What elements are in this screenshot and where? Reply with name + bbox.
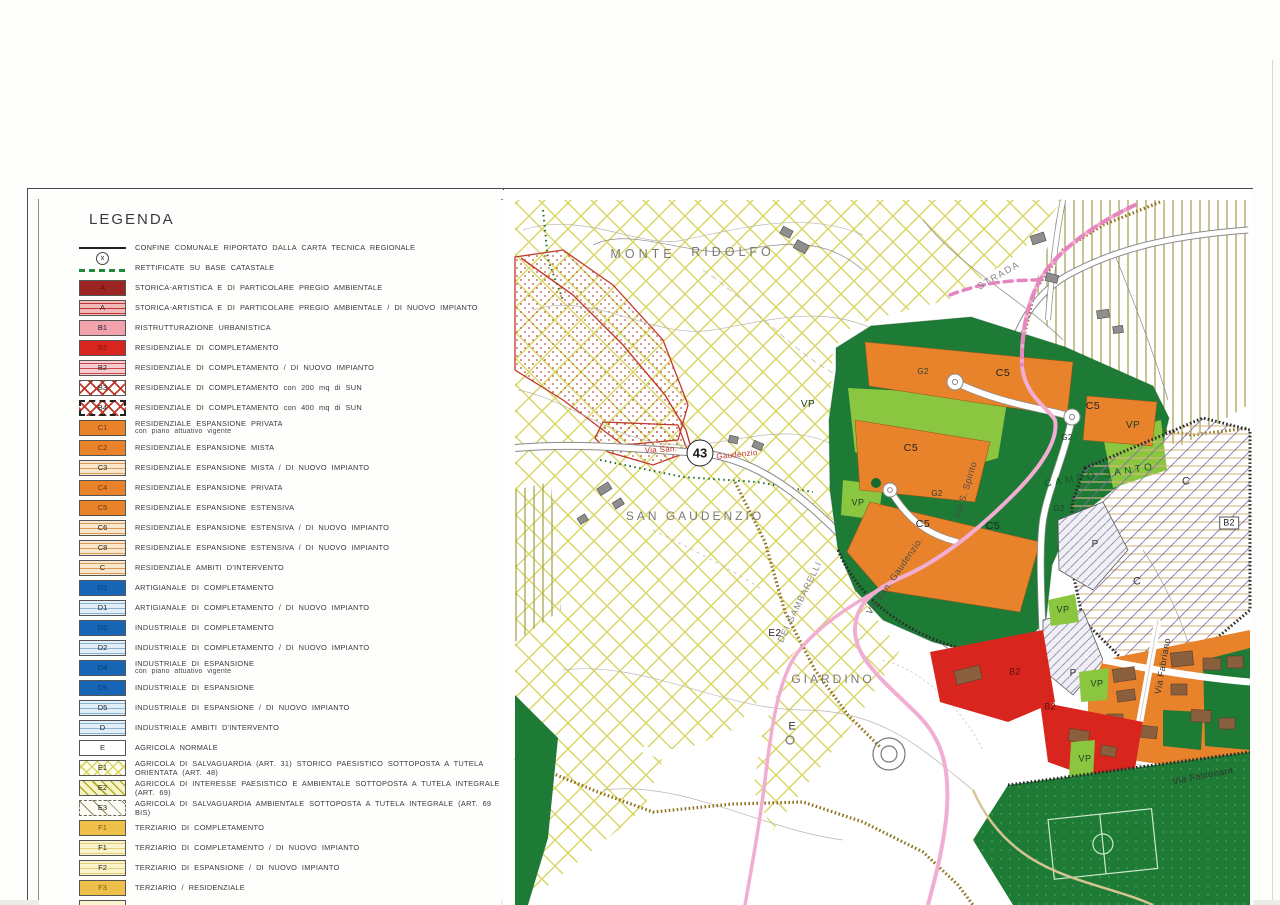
legend-label-text: INDUSTRIALE DI ESPANSIONE [135,659,254,668]
legend-label: RESIDENZIALE ESPANSIONE MISTA [135,443,274,452]
legend-label-text: AGRICOLA DI SALVAGUARDIA AMBIENTALE SOTT… [135,799,491,817]
legend-swatch: F1 [79,820,126,836]
legend-label: RESIDENZIALE ESPANSIONE MISTA / DI NUOVO… [135,463,369,472]
legend-label-text: RESIDENZIALE DI COMPLETAMENTO [135,343,279,352]
legend-label: CONFINE COMUNALE RIPORTATO DALLA CARTA T… [135,243,415,252]
legend-title: LEGENDA [89,211,501,228]
legend-item-e1: E1AGRICOLA DI SALVAGUARDIA (ART. 31) STO… [79,758,501,778]
legend-panel: LEGENDA CONFINE COMUNALE RIPORTATO DALLA… [39,199,501,905]
scanned-zoning-plan-sheet: LEGENDA CONFINE COMUNALE RIPORTATO DALLA… [0,0,1280,905]
legend-swatch: C1 [79,420,126,436]
legend-item-b1: B1RISTRUTTURAZIONE URBANISTICA [79,318,501,338]
legend-item-d4: D4INDUSTRIALE DI ESPANSIONEcon piano att… [79,658,501,678]
legend-label-text: RESIDENZIALE ESPANSIONE ESTENSIVA [135,503,294,512]
legend-swatch: F3 [79,880,126,896]
legend-label: INDUSTRIALE DI COMPLETAMENTO / DI NUOVO … [135,643,369,652]
legend-code: E [100,744,105,752]
legend-item-c3: C3RESIDENZIALE ESPANSIONE MISTA / DI NUO… [79,458,501,478]
legend-label: TERZIARIO / RESIDENZIALE [135,883,245,892]
legend-swatch: x [79,260,126,276]
legend-code: E2 [98,784,107,792]
legend-label: RESIDENZIALE AMBITI D'INTERVENTO [135,563,284,572]
legend-code: C1 [98,424,108,432]
legend-label-text: ARTIGIANALE DI COMPLETAMENTO / DI NUOVO … [135,603,369,612]
legend-label-text: ARTIGIANALE DI COMPLETAMENTO [135,583,274,592]
legend-swatch: F2 [79,860,126,876]
legend-label-subtext: con piano attuativo vigente [135,428,283,437]
legend-label: RISTRUTTURAZIONE URBANISTICA [135,323,271,332]
legend-item-a: ASTORICA-ARTISTICA E DI PARTICOLARE PREG… [79,298,501,318]
legend-swatch: D5 [79,680,126,696]
legend-item-d2: D2INDUSTRIALE DI COMPLETAMENTO [79,618,501,638]
legend-label: ARTIGIANALE DI COMPLETAMENTO [135,583,274,592]
legend-code: B3 [98,384,107,392]
legend-item-partial [79,898,501,905]
legend-label-text: TERZIARIO DI COMPLETAMENTO / DI NUOVO IM… [135,843,359,852]
legend-item-b2: B2RESIDENZIALE DI COMPLETAMENTO / DI NUO… [79,358,501,378]
legend-label: AGRICOLA NORMALE [135,743,218,752]
legend-code: B2 [98,344,107,352]
legend-code: D5 [98,704,108,712]
legend-code: C5 [98,504,108,512]
legend-swatch: D4 [79,660,126,676]
legend-swatch: D2 [79,640,126,656]
legend-label: RESIDENZIALE DI COMPLETAMENTO [135,343,279,352]
legend-label-text: AGRICOLA DI INTERESSE PAESISTICO E AMBIE… [135,779,500,797]
legend-item-c1: C1RESIDENZIALE ESPANSIONE PRIVATAcon pia… [79,418,501,438]
legend-label: INDUSTRIALE DI COMPLETAMENTO [135,623,274,632]
legend-swatch: E [79,740,126,756]
legend-label-text: TERZIARIO DI ESPANSIONE / DI NUOVO IMPIA… [135,863,340,872]
legend-code: D1 [98,604,108,612]
legend-label: INDUSTRIALE DI ESPANSIONEcon piano attua… [135,659,254,677]
legend-label: STORICA-ARTISTICA E DI PARTICOLARE PREGI… [135,303,478,312]
legend-swatch: C3 [79,460,126,476]
legend-code: C [100,564,105,572]
legend-label: RESIDENZIALE ESPANSIONE ESTENSIVA [135,503,294,512]
map-panel: MONTERIDOLFOSAN GAUDENZIOGIARDINOSTRADAD… [503,190,1253,905]
legend-swatch: B1 [79,320,126,336]
legend-item-b4: B4RESIDENZIALE DI COMPLETAMENTO con 400 … [79,398,501,418]
legend-label: INDUSTRIALE DI ESPANSIONE / DI NUOVO IMP… [135,703,349,712]
legend-swatch: C5 [79,500,126,516]
legend-label-text: RESIDENZIALE ESPANSIONE MISTA / DI NUOVO… [135,463,369,472]
legend-item-f1: F1TERZIARIO DI COMPLETAMENTO / DI NUOVO … [79,838,501,858]
legend-label-text: INDUSTRIALE DI COMPLETAMENTO / DI NUOVO … [135,643,369,652]
legend-code: D4 [98,664,108,672]
legend-item-f2: F2TERZIARIO DI ESPANSIONE / DI NUOVO IMP… [79,858,501,878]
legend-item-d1: D1ARTIGIANALE DI COMPLETAMENTO / DI NUOV… [79,598,501,618]
legend-item-a: ASTORICA-ARTISTICA E DI PARTICOLARE PREG… [79,278,501,298]
legend-code: A [100,284,105,292]
legend-code: A [100,304,105,312]
legend-label-text: CONFINE COMUNALE RIPORTATO DALLA CARTA T… [135,243,415,252]
legend-label-subtext: con piano attuativo vigente [135,668,254,677]
legend-swatch: D [79,720,126,736]
legend-code: C3 [98,464,108,472]
legend-label-text: INDUSTRIALE DI COMPLETAMENTO [135,623,274,632]
legend-swatch: E1 [79,760,126,776]
legend-label-text: INDUSTRIALE AMBITI D'INTERVENTO [135,723,279,732]
legend-item-b3: B3RESIDENZIALE DI COMPLETAMENTO con 200 … [79,378,501,398]
circled-x-marker: x [96,252,109,265]
legend-label-text: AGRICOLA DI SALVAGUARDIA (ART. 31) STORI… [135,759,483,777]
legend-item-e2: E2AGRICOLA DI INTERESSE PAESISTICO E AMB… [79,778,501,798]
legend-label: STORICA-ARTISTICA E DI PARTICOLARE PREGI… [135,283,382,292]
legend-item-b2: B2RESIDENZIALE DI COMPLETAMENTO [79,338,501,358]
legend-swatch: D2 [79,620,126,636]
legend-label-text: INDUSTRIALE DI ESPANSIONE / DI NUOVO IMP… [135,703,349,712]
legend-swatch: B2 [79,360,126,376]
legend-label: RESIDENZIALE DI COMPLETAMENTO con 400 mq… [135,403,362,412]
legend-code: D2 [98,624,108,632]
legend-label: RESIDENZIALE ESPANSIONE PRIVATAcon piano… [135,419,283,437]
legend-swatch: E3 [79,800,126,816]
legend-rows: CONFINE COMUNALE RIPORTATO DALLA CARTA T… [79,238,501,905]
legend-item-d: DINDUSTRIALE AMBITI D'INTERVENTO [79,718,501,738]
legend-label-text: RISTRUTTURAZIONE URBANISTICA [135,323,271,332]
legend-code: C4 [98,484,108,492]
legend-code: C6 [98,524,108,532]
legend-label-text: INDUSTRIALE DI ESPANSIONE [135,683,254,692]
legend-label-text: RESIDENZIALE ESPANSIONE MISTA [135,443,274,452]
legend-item-e: EAGRICOLA NORMALE [79,738,501,758]
legend-label: INDUSTRIALE AMBITI D'INTERVENTO [135,723,279,732]
legend-label: RESIDENZIALE ESPANSIONE PRIVATA [135,483,283,492]
frame-top-outer [27,188,1253,189]
legend-swatch: C8 [79,540,126,556]
legend-code: C8 [98,544,108,552]
legend-label: TERZIARIO DI ESPANSIONE / DI NUOVO IMPIA… [135,863,340,872]
legend-label-text: RESIDENZIALE ESPANSIONE PRIVATA [135,483,283,492]
legend-swatch: B4 [79,400,126,416]
legend-swatch: B3 [79,380,126,396]
legend-swatch: A [79,280,126,296]
legend-label-text: RETTIFICATE SU BASE CATASTALE [135,263,274,272]
legend-label-text: RESIDENZIALE DI COMPLETAMENTO con 400 mq… [135,403,362,412]
legend-label-text: RESIDENZIALE ESPANSIONE PRIVATA [135,419,283,428]
legend-code: F2 [98,864,107,872]
legend-code: F3 [98,884,107,892]
legend-swatch: F1 [79,840,126,856]
legend-item-f1: F1TERZIARIO DI COMPLETAMENTO [79,818,501,838]
legend-code: E1 [98,764,107,772]
legend-label-text: TERZIARIO / RESIDENZIALE [135,883,245,892]
legend-label-text: STORICA-ARTISTICA E DI PARTICOLARE PREGI… [135,303,478,312]
legend-item-line: CONFINE COMUNALE RIPORTATO DALLA CARTA T… [79,238,501,258]
legend-label: TERZIARIO DI COMPLETAMENTO / DI NUOVO IM… [135,843,359,852]
legend-swatch [79,900,126,905]
legend-code: F1 [98,824,107,832]
zoning-map [503,190,1253,905]
paper-edge-right [1272,60,1273,905]
legend-label: RESIDENZIALE DI COMPLETAMENTO / DI NUOVO… [135,363,374,372]
legend-label: RESIDENZIALE DI COMPLETAMENTO con 200 mq… [135,383,362,392]
legend-swatch: C4 [79,480,126,496]
legend-item-c2: C2RESIDENZIALE ESPANSIONE MISTA [79,438,501,458]
legend-item-d2: D2INDUSTRIALE DI COMPLETAMENTO / DI NUOV… [79,638,501,658]
legend-swatch: E2 [79,780,126,796]
legend-code: F1 [98,844,107,852]
legend-label: RETTIFICATE SU BASE CATASTALE [135,263,274,272]
legend-code: E3 [98,804,107,812]
legend-label-text: AGRICOLA NORMALE [135,743,218,752]
legend-label-text: TERZIARIO DI COMPLETAMENTO [135,823,264,832]
legend-code: D1 [98,584,108,592]
legend-item-c5: C5RESIDENZIALE ESPANSIONE ESTENSIVA [79,498,501,518]
legend-item-c8: C8RESIDENZIALE ESPANSIONE ESTENSIVA / DI… [79,538,501,558]
legend-item-c6: C6RESIDENZIALE ESPANSIONE ESTENSIVA / DI… [79,518,501,538]
legend-label-text: RESIDENZIALE AMBITI D'INTERVENTO [135,563,284,572]
legend-label: ARTIGIANALE DI COMPLETAMENTO / DI NUOVO … [135,603,369,612]
legend-code: D [100,724,105,732]
legend-code: D2 [98,644,108,652]
legend-item-x: xRETTIFICATE SU BASE CATASTALE [79,258,501,278]
legend-code: D5 [98,684,108,692]
legend-swatch: D1 [79,600,126,616]
legend-code: B2 [98,364,107,372]
legend-item-d5: D5INDUSTRIALE DI ESPANSIONE [79,678,501,698]
legend-label: INDUSTRIALE DI ESPANSIONE [135,683,254,692]
legend-swatch: B2 [79,340,126,356]
legend-swatch: A [79,300,126,316]
legend-item-e3: E3AGRICOLA DI SALVAGUARDIA AMBIENTALE SO… [79,798,501,818]
legend-swatch: C2 [79,440,126,456]
legend-item-c: CRESIDENZIALE AMBITI D'INTERVENTO [79,558,501,578]
legend-label-text: RESIDENZIALE DI COMPLETAMENTO / DI NUOVO… [135,363,374,372]
legend-code: C2 [98,444,108,452]
legend-label: AGRICOLA DI SALVAGUARDIA (ART. 31) STORI… [135,759,501,778]
legend-swatch: C6 [79,520,126,536]
legend-label: TERZIARIO DI COMPLETAMENTO [135,823,264,832]
legend-code: B4 [98,404,107,412]
legend-code: B1 [98,324,107,332]
green-dot-marker [871,478,881,488]
legend-label: AGRICOLA DI INTERESSE PAESISTICO E AMBIE… [135,779,501,798]
legend-label-text: STORICA-ARTISTICA E DI PARTICOLARE PREGI… [135,283,382,292]
legend-label: RESIDENZIALE ESPANSIONE ESTENSIVA / DI N… [135,523,389,532]
legend-label-text: RESIDENZIALE ESPANSIONE ESTENSIVA / DI N… [135,543,389,552]
legend-item-d1: D1ARTIGIANALE DI COMPLETAMENTO [79,578,501,598]
legend-swatch: D5 [79,700,126,716]
legend-item-f3: F3TERZIARIO / RESIDENZIALE [79,878,501,898]
legend-item-c4: C4RESIDENZIALE ESPANSIONE PRIVATA [79,478,501,498]
legend-label-text: RESIDENZIALE DI COMPLETAMENTO con 200 mq… [135,383,362,392]
legend-swatch: C [79,560,126,576]
legend-label: AGRICOLA DI SALVAGUARDIA AMBIENTALE SOTT… [135,799,501,818]
legend-label: RESIDENZIALE ESPANSIONE ESTENSIVA / DI N… [135,543,389,552]
legend-label-text: RESIDENZIALE ESPANSIONE ESTENSIVA / DI N… [135,523,389,532]
legend-swatch: D1 [79,580,126,596]
frame-left-outer [27,188,28,905]
legend-item-d5: D5INDUSTRIALE DI ESPANSIONE / DI NUOVO I… [79,698,501,718]
